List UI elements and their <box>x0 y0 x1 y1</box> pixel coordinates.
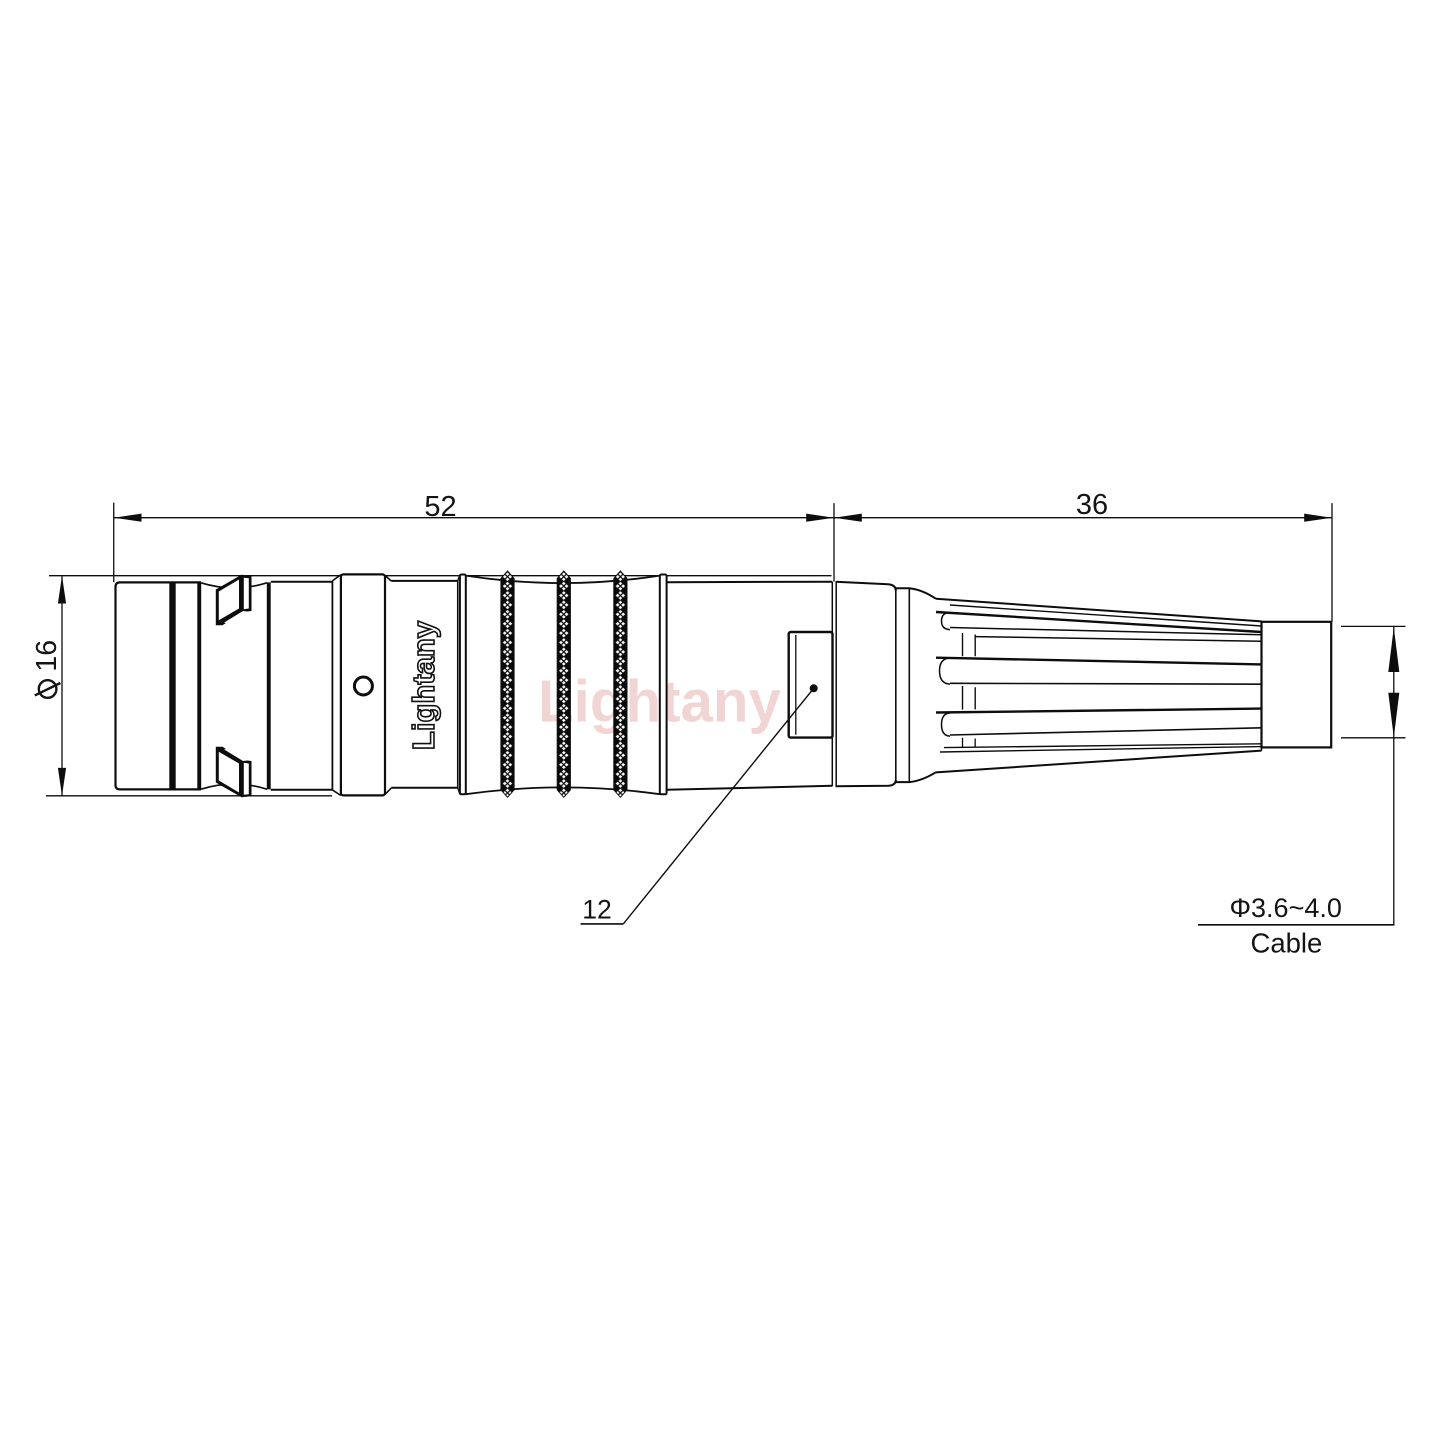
svg-text:12: 12 <box>582 894 611 924</box>
svg-text:16: 16 <box>31 640 63 672</box>
svg-text:Cable: Cable <box>1250 927 1322 958</box>
svg-text:Lightany: Lightany <box>406 620 441 750</box>
svg-text:36: 36 <box>1076 489 1108 521</box>
svg-text:Φ3.6~4.0: Φ3.6~4.0 <box>1230 893 1342 923</box>
svg-text:52: 52 <box>424 491 456 523</box>
